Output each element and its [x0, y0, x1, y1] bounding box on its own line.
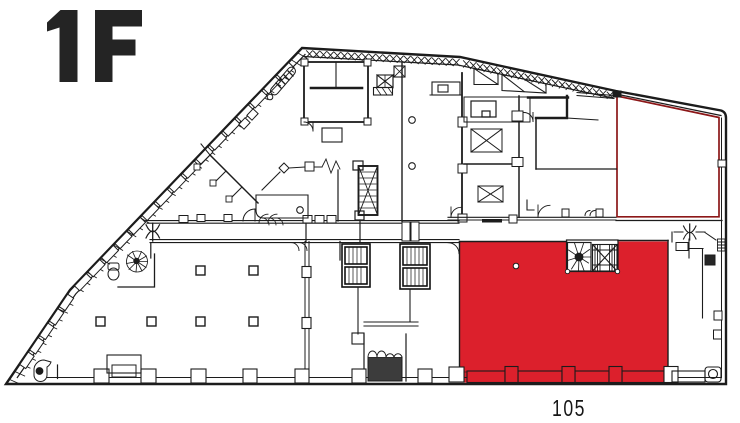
svg-text:105: 105: [552, 395, 586, 421]
